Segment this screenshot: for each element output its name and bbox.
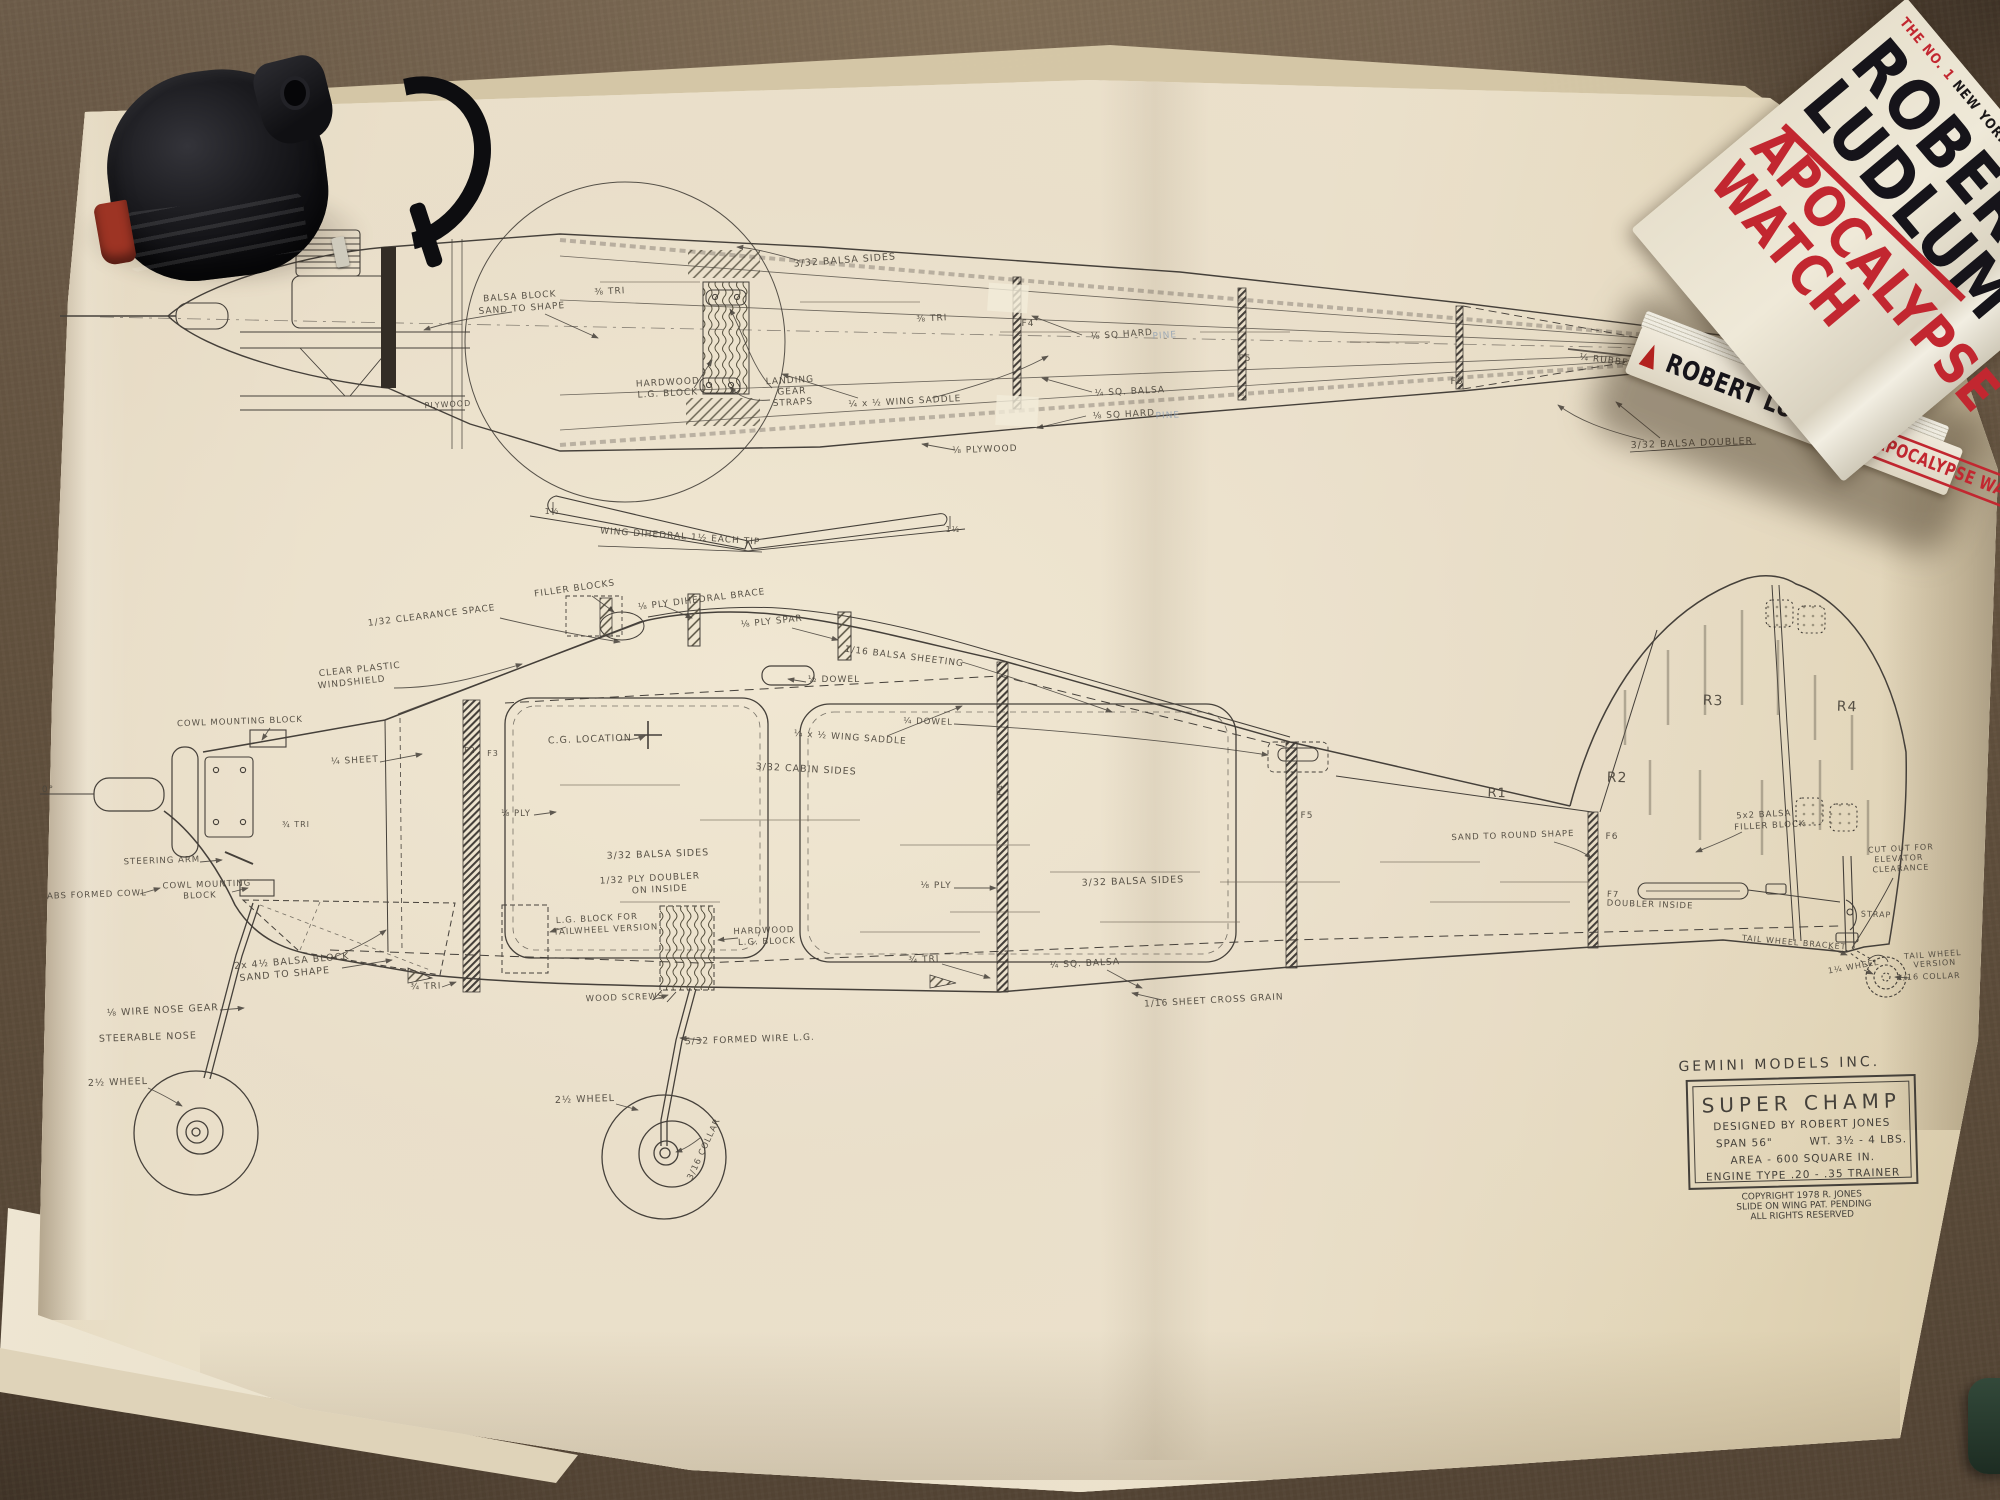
designer-line: DESIGNED BY ROBERT JONES <box>1713 1117 1890 1134</box>
plan-label: F5 <box>1239 354 1252 364</box>
hardwood-lg-block-side <box>660 906 714 990</box>
plan-label: ⅛ PLY DIHEDRAL BRACE <box>638 587 766 613</box>
plan-label: ⅛ PLY <box>920 881 951 891</box>
plan-label: BLOCK <box>183 890 217 901</box>
copyright-line-3: ALL RIGHTS RESERVED <box>1750 1210 1854 1223</box>
hardwood-lg-block-top <box>703 282 749 394</box>
plan-label: COWL MOUNTING <box>162 878 251 891</box>
plan-label: ⅜ TRI <box>594 286 625 298</box>
plan-label: ⅛ PLY SPAR <box>740 614 803 630</box>
plan-label: ¼ x ½ WING SADDLE <box>793 729 907 747</box>
plan-label: 1½ <box>545 507 560 516</box>
plan-label: F2 <box>464 746 476 755</box>
company-name: GEMINI MODELS INC. <box>1678 1054 1880 1075</box>
model-name: SUPER CHAMP <box>1701 1088 1901 1117</box>
plan-label: F4 <box>1022 319 1035 329</box>
plan-label: 2½ WHEEL <box>88 1076 148 1089</box>
plan-label: ⅛ SQ HARD <box>1090 328 1153 342</box>
plan-label: DOUBLER INSIDE <box>1607 898 1694 911</box>
formers-side-view <box>997 662 1598 992</box>
green-object <box>1968 1378 2000 1474</box>
tape-measure <box>96 52 416 292</box>
plan-label: ⅛ PLYWOOD <box>952 444 1018 456</box>
plan-label: ¾ TRI <box>908 954 939 965</box>
photo-scene: GEMINI MODELS INC. SUPER CHAMP DESIGNED … <box>0 0 2000 1500</box>
plan-label: ⅛ PLY <box>501 809 531 819</box>
plan-label: STRAP <box>1861 909 1892 919</box>
span-spec: SPAN 56" <box>1716 1137 1773 1150</box>
plan-label: 3/32 CABIN SIDES <box>755 761 857 777</box>
plan-label: ¼ SQ. BALSA <box>1049 957 1120 971</box>
plan-label: 1¼ WHEEL <box>1827 958 1880 976</box>
plan-label: F6 <box>1606 832 1619 842</box>
publisher-logo-icon <box>1638 342 1662 370</box>
plan-label: SAND TO ROUND SHAPE <box>1451 829 1574 843</box>
plan-label: STRAPS <box>772 397 813 409</box>
plan-label: ¼ SHEET <box>331 755 379 767</box>
plan-label: F4 <box>996 784 1005 796</box>
plan-label: LANDING <box>765 375 814 388</box>
plan-label: C.G. LOCATION <box>548 733 632 747</box>
plan-label: R1 <box>1487 786 1507 802</box>
plan-label: COWL MOUNTING BLOCK <box>177 715 303 729</box>
plan-label: ABS FORMED COWL <box>47 888 147 901</box>
propeller-side-view <box>172 747 198 857</box>
nose-gear <box>134 903 259 1195</box>
tape-measure-hook-tab <box>331 236 350 268</box>
plan-label: WING DIHEDRAL 1½ EACH TIP <box>600 526 761 547</box>
spinner-side-view <box>94 778 164 811</box>
engine-spec: ENGINE TYPE .20 - .35 TRAINER <box>1706 1166 1900 1183</box>
plan-label: FILLER BLOCK <box>1734 819 1806 833</box>
plan-label: ON INSIDE <box>632 884 689 897</box>
plan-label: 0° <box>42 785 54 795</box>
plan-label: FILLER BLOCKS <box>534 578 616 599</box>
plan-label: PINE <box>1152 330 1177 342</box>
plan-label: F5 <box>1301 811 1314 821</box>
plan-label: L.G. BLOCK <box>738 936 796 948</box>
plan-label: STEERABLE NOSE <box>99 1030 197 1044</box>
plan-label: CUT OUT FOR <box>1868 842 1934 854</box>
plan-label: 1/16 SHEET CROSS GRAIN <box>1144 992 1284 1009</box>
plan-label: 1½ <box>946 525 961 534</box>
plan-label: 1/32 CLEARANCE SPACE <box>367 603 496 629</box>
plan-label: PINE <box>1155 410 1180 421</box>
main-gear <box>602 988 726 1219</box>
plan-label: ¼ SQ. BALSA <box>1094 385 1165 399</box>
plan-label: WOOD SCREWS <box>586 992 665 1005</box>
area-spec: AREA - 600 SQUARE IN. <box>1730 1151 1875 1167</box>
plan-label: CLEARANCE <box>1872 863 1929 875</box>
plan-label: ⅜ TRI <box>916 313 947 325</box>
cg-cross-mark <box>634 721 662 749</box>
plan-label: R3 <box>1703 693 1724 710</box>
plan-label: PLYWOOD <box>424 399 471 410</box>
plan-label: ⅛ WIRE NOSE GEAR <box>107 1002 220 1019</box>
wing-dowel <box>762 666 814 685</box>
plan-label: R2 <box>1607 770 1628 787</box>
plan-label: ¾ TRI <box>410 981 441 992</box>
plan-label: ½ DOWEL <box>808 675 860 685</box>
plan-label: 5/32 FORMED WIRE L.G. <box>685 1033 815 1048</box>
plan-label: ¼ DOWEL <box>903 716 953 728</box>
plan-label: ⅛ SQ HARD <box>1092 408 1155 421</box>
plan-label: VERSION <box>1913 958 1956 970</box>
plan-label: 3/32 BALSA SIDES <box>606 847 709 862</box>
plan-label: F3 <box>487 749 499 758</box>
plan-label: GEAR <box>777 386 807 398</box>
firewall-side-view <box>463 700 480 992</box>
plan-label: 2½ WHEEL <box>555 1093 615 1106</box>
tailwheel-lg-block <box>502 905 548 973</box>
plan-label: R4 <box>1837 699 1858 716</box>
plan-label: F6 <box>1451 377 1464 387</box>
title-block: GEMINI MODELS INC. SUPER CHAMP DESIGNED … <box>1678 1053 1918 1224</box>
plan-label: STEERING ARM <box>124 855 201 868</box>
tail-fin-outline <box>1570 576 1906 952</box>
plan-label: 1/16 COLLAR <box>1897 971 1961 982</box>
plan-label: HARDWOOD <box>733 925 794 937</box>
plan-label: ¾ TRI <box>282 820 310 829</box>
plan-label: 3/32 BALSA SIDES <box>1081 874 1184 889</box>
weight-spec: WT. 3½ - 4 LBS. <box>1809 1133 1907 1148</box>
tape-measure-clip-hole <box>284 80 306 106</box>
